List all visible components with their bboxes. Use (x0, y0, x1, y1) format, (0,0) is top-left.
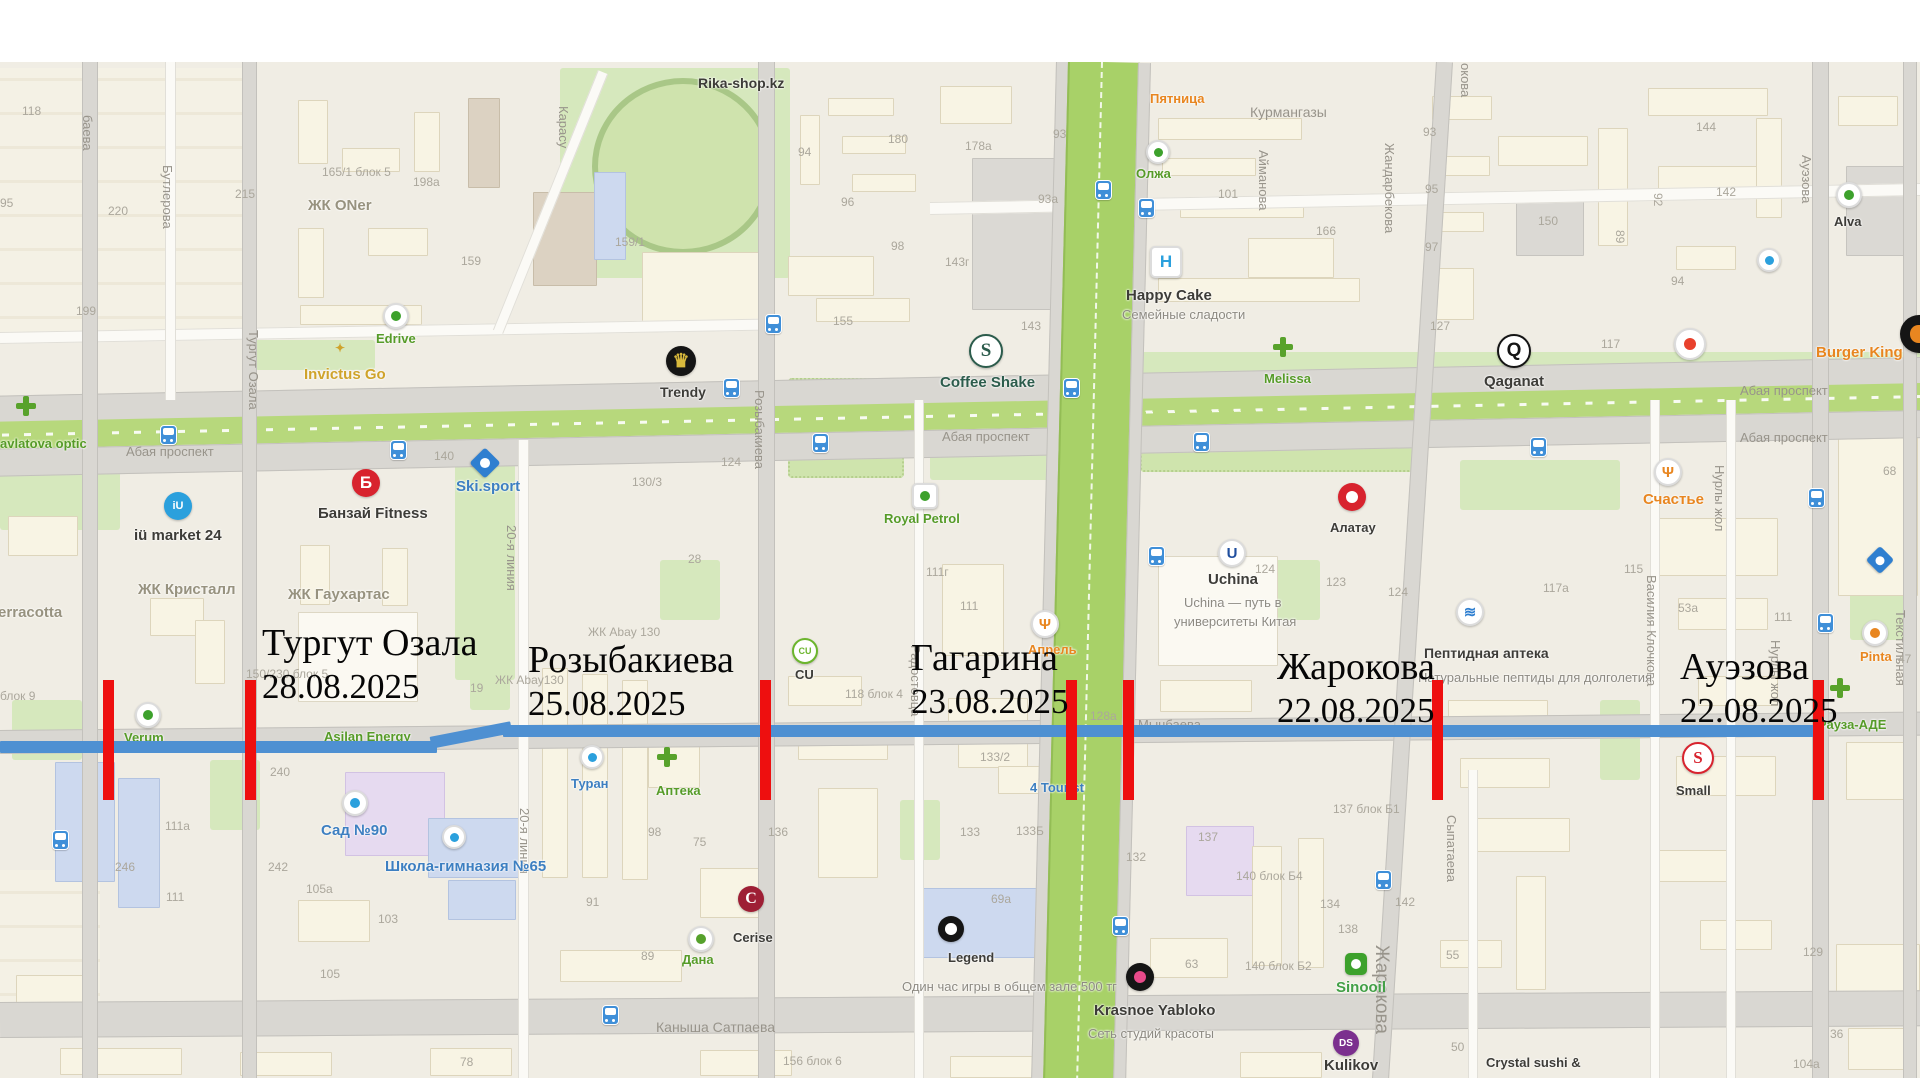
street-label: окова (1458, 63, 1473, 97)
place-label: Туран (571, 776, 609, 791)
house-number: 28 (688, 552, 701, 566)
checkpoint-date-label: 28.08.2025 (262, 667, 420, 707)
house-number: 246 (115, 860, 135, 874)
street-label: Абая проспект (1740, 383, 1828, 398)
house-number: 143 (1021, 319, 1041, 333)
olzha-cart-icon-dot (1154, 148, 1163, 157)
place-label: Sinooil (1336, 979, 1386, 996)
house-number: 215 (235, 187, 255, 201)
building (448, 880, 516, 920)
street-label: 20-я линия (504, 525, 519, 591)
house-number: 198а (413, 175, 440, 189)
house-number: 50 (1451, 1040, 1464, 1054)
building (468, 98, 500, 188)
house-number: 111 (1774, 610, 1792, 624)
place-label: Пятница (1150, 91, 1205, 106)
survey-marker-bar (103, 680, 114, 800)
sinooil-icon-dot (1351, 959, 1361, 969)
building (1470, 818, 1570, 852)
place-label: Krasnoe Yabloko (1094, 1002, 1215, 1019)
checkpoint-street-label: Жарокова (1277, 645, 1435, 689)
tekstilnaya-road (1903, 62, 1917, 1078)
uchina-icon[interactable]: U (1218, 539, 1246, 567)
pinta-icon-dot (1870, 628, 1880, 638)
checkpoint-date-label: 25.08.2025 (528, 684, 686, 724)
house-number: 220 (108, 204, 128, 218)
kulikov-icon[interactable]: DS (1333, 1030, 1359, 1056)
bus-stop-icon[interactable] (160, 425, 177, 445)
building (828, 98, 894, 116)
sypataeva-road (1468, 770, 1478, 1078)
house-number: 103 (378, 912, 398, 926)
house-number: 242 (268, 860, 288, 874)
building (918, 888, 1038, 958)
dana-cart-icon[interactable] (688, 926, 714, 952)
building (1162, 158, 1256, 176)
place-label: Счастье (1643, 491, 1704, 508)
satpaeva-road (0, 990, 1920, 1038)
top-white-margin (0, 0, 1920, 62)
house-number: 138 (1338, 922, 1358, 936)
house-number: 150 (1538, 214, 1558, 228)
house-number: 128а (1090, 709, 1117, 723)
house-number: 133Б (1016, 824, 1044, 838)
place-label: Олжа (1136, 166, 1171, 181)
house-number: 136 (768, 825, 788, 839)
building (1846, 166, 1906, 256)
house-number: 94 (1671, 274, 1684, 288)
krasnoe-yabloko-icon[interactable] (1126, 963, 1154, 991)
bus-stop-icon[interactable] (765, 314, 782, 334)
pharmacy-plus-icon[interactable] (14, 394, 38, 418)
bus-stop-icon[interactable] (723, 378, 740, 398)
bus-stop-icon[interactable] (1148, 546, 1165, 566)
hotel-icon[interactable]: H (1150, 246, 1182, 278)
coffee-shake-icon[interactable]: S (969, 334, 1003, 368)
trendy-crown-icon[interactable]: ♛ (666, 346, 696, 376)
pinta-icon[interactable] (1862, 620, 1888, 646)
checkpoint-date-label: 23.08.2025 (911, 682, 1069, 722)
place-label: Qaganat (1484, 373, 1544, 390)
house-number: 156 блок 6 (783, 1054, 842, 1068)
turgut-ozala-road (242, 62, 257, 1078)
rozybakieva-road (758, 62, 775, 1078)
survey-marker-bar (1123, 680, 1134, 800)
water-drop-icon[interactable] (1757, 248, 1781, 272)
building (1838, 96, 1898, 126)
house-number: 240 (270, 765, 290, 779)
house-number: 142 (1716, 185, 1736, 199)
survey-marker-bar (760, 680, 771, 800)
building (414, 112, 440, 172)
kindergarten-icon-dot (350, 798, 360, 808)
royal-petrol-icon-dot (920, 491, 930, 501)
route-line (503, 725, 1818, 737)
place-label: Один час игры в общем зале 500 тг (902, 979, 1117, 994)
kindergarten-icon[interactable] (342, 790, 368, 816)
building (788, 256, 874, 296)
house-number: 123 (1326, 575, 1346, 589)
nurly-zhol-road (1726, 400, 1736, 1078)
checkpoint-date-label: 22.08.2025 (1680, 691, 1838, 731)
house-number: 180 (888, 132, 908, 146)
house-number: 144 (1696, 120, 1716, 134)
place-label: Rika-shop.kz (698, 75, 784, 91)
house-number: 129 (1803, 945, 1823, 959)
small-market-icon[interactable]: S (1682, 742, 1714, 774)
bus-stop-icon[interactable] (1112, 916, 1129, 936)
bus-stop-icon[interactable] (1817, 613, 1834, 633)
building (1676, 246, 1736, 270)
verum-icon[interactable] (135, 702, 161, 728)
street-label: Курмангазы (1250, 104, 1327, 120)
place-label: Small (1676, 783, 1711, 798)
house-number: 118 блок 4 (845, 687, 903, 701)
line-20-road (518, 440, 529, 1078)
house-number: 97 (1425, 240, 1438, 254)
bus-stop-icon[interactable] (1095, 180, 1112, 200)
building (940, 86, 1012, 124)
house-number: 117 (1601, 337, 1620, 351)
house-number: 111 (960, 599, 978, 613)
house-number: 104а (1793, 1057, 1820, 1071)
house-number: 53а (1678, 601, 1698, 615)
place-label: Kulikov (1324, 1057, 1378, 1074)
photo-studio-icon[interactable] (1674, 328, 1706, 360)
building (816, 298, 910, 322)
checkpoint-date-label: 22.08.2025 (1277, 691, 1435, 731)
place-label: Cerise (733, 930, 773, 945)
street-label: Абая проспект (942, 429, 1030, 444)
route-line (0, 741, 437, 753)
place-label: CU (795, 667, 814, 682)
house-number: 89 (641, 949, 654, 963)
house-number: 124 (1388, 585, 1408, 599)
building (972, 158, 1056, 310)
house-number: 199 (76, 304, 96, 318)
house-number: 69а (991, 892, 1011, 906)
house-number: 68 (1883, 464, 1896, 478)
house-number: 101 (1218, 187, 1238, 201)
checkpoint-street-label: Ауэзова (1680, 645, 1809, 689)
place-label: Terracotta (0, 604, 62, 621)
street-label: Каныша Сатпаева (656, 1019, 775, 1035)
house-number: 117а (1543, 581, 1569, 595)
bus-stop-icon[interactable] (1375, 870, 1392, 890)
alatau-icon-dot (1346, 491, 1359, 504)
street-label: Айманова (1256, 150, 1271, 211)
water-drop-icon-dot (1765, 256, 1774, 265)
house-number: 105 (320, 967, 340, 981)
sinooil-icon[interactable] (1345, 953, 1367, 975)
place-label: ЖК Гаухартас (288, 586, 390, 603)
bus-stop-icon[interactable] (602, 1005, 619, 1025)
survey-marker-bar (245, 680, 256, 800)
building (195, 620, 225, 684)
building (118, 778, 160, 908)
edrive-icon[interactable] (383, 303, 409, 329)
house-number: 133 (960, 825, 980, 839)
house-number: 118 (22, 104, 41, 118)
house-number: ЖК Abay 130 (588, 625, 660, 639)
bus-stop-icon[interactable] (390, 440, 407, 460)
house-number: 75 (693, 835, 706, 849)
building (1516, 876, 1546, 990)
olzha-cart-icon[interactable] (1146, 140, 1170, 164)
building (1652, 850, 1734, 882)
house-number: 178а (965, 139, 992, 153)
place-label: Pinta (1860, 649, 1892, 664)
place-label: Burger King (1816, 344, 1903, 361)
apteka-plus-icon[interactable] (655, 745, 679, 769)
building (818, 788, 878, 878)
house-number: 140 блок Б2 (1245, 959, 1312, 973)
place-label: Edrive (376, 331, 416, 346)
house-number: 92 (1651, 193, 1665, 206)
street-label: Абая проспект (126, 444, 214, 459)
turan-icon[interactable] (580, 745, 604, 769)
legend-club-icon-dot (945, 923, 957, 935)
royal-petrol-icon[interactable] (912, 483, 938, 509)
house-number: 163 (472, 62, 492, 64)
cu-store-icon[interactable]: CU (792, 638, 818, 664)
street-label: Розыбакиева (752, 390, 767, 469)
tea-shop-icon-dot (1910, 325, 1920, 342)
building (1756, 118, 1782, 218)
turan-icon-dot (588, 753, 597, 762)
house-number: 111а (165, 819, 190, 833)
alva-leaf-icon[interactable] (1836, 182, 1862, 208)
house-number: 111 (166, 890, 184, 904)
school-bulb-icon-dot (450, 833, 459, 842)
house-number: 95 (1425, 182, 1438, 196)
building (298, 228, 324, 298)
house-number: 19 (470, 681, 483, 695)
photo-studio-icon-dot (1684, 338, 1697, 351)
baeva-road (82, 62, 98, 1078)
house-number: 132 (1126, 850, 1146, 864)
place-label: Сад №90 (321, 822, 387, 839)
house-number: 137 блок Б1 (1333, 802, 1400, 816)
house-number: 166 (1316, 224, 1336, 238)
peptide-pharmacy-icon[interactable]: ≋ (1456, 598, 1484, 626)
map-canvas[interactable]: баеваБутлероваТургут ОзалаКарасу20-я лин… (0, 62, 1920, 1078)
house-number: 93 (1423, 125, 1436, 139)
street-label: Нурлы жол (1712, 465, 1727, 531)
place-label: Школа-гимназия №65 (385, 858, 546, 875)
house-number: 78 (460, 1055, 473, 1069)
green-area (660, 560, 720, 620)
building (1848, 1028, 1910, 1070)
place-label: Uchina (1208, 571, 1258, 588)
house-number: 47 (1898, 652, 1911, 666)
alatau-icon[interactable] (1338, 483, 1366, 511)
ski-sport-icon-dot (478, 456, 492, 470)
school-bulb-icon[interactable] (442, 825, 466, 849)
aprel-fork-icon[interactable]: Ψ (1031, 610, 1059, 638)
house-number: 159 (461, 254, 481, 268)
house-number: 140 (434, 449, 454, 463)
house-number: 159/1 (615, 235, 645, 249)
building (1248, 238, 1334, 278)
street-label: Жандарбекова (1382, 143, 1397, 233)
house-number: 94 (798, 145, 811, 159)
street-label: Тургут Озала (246, 330, 261, 410)
service-diamond-icon-dot (1874, 554, 1887, 567)
street-label: Текстильная (1893, 610, 1908, 686)
house-number: 155 (833, 314, 853, 328)
qaganat-icon[interactable]: Q (1497, 334, 1531, 368)
building (1648, 88, 1768, 116)
house-number: 96 (841, 195, 854, 209)
bus-stop-icon[interactable] (1063, 378, 1080, 398)
bus-stop-icon[interactable] (1530, 437, 1547, 457)
house-number: блок 9 (0, 689, 35, 703)
checkpoint-street-label: Гагарина (911, 636, 1058, 680)
building (1598, 128, 1628, 246)
place-label: Coffee Shake (940, 374, 1035, 391)
building (700, 1050, 792, 1076)
house-number: 105а (306, 882, 333, 896)
house-number: 63 (1185, 957, 1198, 971)
house-number: 98 (648, 825, 661, 839)
place-label: Invictus Go (304, 366, 386, 383)
bus-stop-icon[interactable] (52, 830, 69, 850)
place-label: Пептидная аптека (1424, 645, 1549, 661)
place-label: Ski.sport (456, 478, 520, 495)
house-number: 98 (891, 239, 904, 253)
street-label: Сыпатаева (1444, 815, 1459, 882)
house-number: 137 (1198, 830, 1218, 844)
place-label: Семейные сладости (1122, 307, 1245, 322)
place-label: ЖК ONer (308, 197, 372, 214)
house-number: 91 (586, 895, 599, 909)
verum-icon-dot (143, 710, 153, 720)
place-label: Crystal sushi & (1486, 1055, 1581, 1070)
building (1700, 920, 1772, 950)
butlerova-road (165, 62, 176, 400)
house-number: 55 (1446, 948, 1459, 962)
building (60, 1048, 182, 1075)
house-number: 95 (0, 196, 13, 210)
house-number: 89 (1613, 230, 1627, 243)
bus-stop-icon[interactable] (812, 433, 829, 453)
legend-club-icon[interactable] (938, 916, 964, 942)
street-label: Бутлерова (160, 165, 175, 229)
house-number: 165/1 блок 5 (322, 165, 391, 179)
edrive-icon-dot (391, 311, 401, 321)
house-number: 115 (1624, 562, 1643, 576)
street-label: Абая проспект (1740, 430, 1828, 445)
auezova-road (1812, 62, 1829, 1078)
green-area (1460, 460, 1620, 510)
bus-stop-icon[interactable] (1138, 198, 1155, 218)
place-label: Банзай Fitness (318, 505, 428, 522)
iu-market-icon[interactable]: iU (164, 492, 192, 520)
street-label: баева (80, 115, 95, 151)
green-area (1600, 700, 1640, 780)
invictus-sparkle-icon[interactable]: ✦ (330, 338, 350, 358)
schastye-fork-icon[interactable]: Ψ (1654, 458, 1682, 486)
place-label: Uchina — путь в (1184, 595, 1281, 610)
building (298, 100, 328, 164)
place-label: Royal Petrol (884, 511, 960, 526)
bus-stop-icon[interactable] (1808, 488, 1825, 508)
building (368, 228, 428, 256)
place-label: Дана (682, 952, 714, 967)
place-label: Alva (1834, 214, 1861, 229)
street-label: Карасу (556, 106, 571, 148)
place-label: iü market 24 (134, 527, 222, 544)
place-label: Legend (948, 950, 994, 965)
house-number: 134 (1320, 897, 1340, 911)
krasnoe-yabloko-icon-dot (1134, 971, 1147, 984)
house-number: 111г (926, 565, 949, 579)
house-number: 36 (1830, 1027, 1843, 1041)
building (1160, 680, 1252, 712)
building (560, 950, 682, 982)
building (298, 900, 370, 942)
place-label: ЖК Кристалл (138, 581, 236, 598)
melissa-plus-icon[interactable] (1271, 335, 1295, 359)
house-number: 140 блок Б4 (1236, 869, 1303, 883)
place-label: avlatova optic (0, 436, 87, 451)
street-label: Ауэзова (1799, 155, 1814, 203)
place-label: Натуральные пептиды для долголетия (1418, 670, 1652, 685)
building (1158, 118, 1302, 140)
building (1252, 846, 1282, 966)
house-number: 127 (1430, 319, 1450, 333)
building (1498, 136, 1588, 166)
building (1240, 1052, 1322, 1078)
bus-stop-icon[interactable] (1193, 432, 1210, 452)
checkpoint-street-label: Розыбакиева (528, 638, 734, 682)
place-label: Алатау (1330, 520, 1376, 535)
house-number: 142 (1395, 895, 1415, 909)
house-number: 124 (721, 455, 741, 469)
house-number: 143г (945, 255, 969, 269)
screenshot-root: баеваБутлероваТургут ОзалаКарасу20-я лин… (0, 0, 1920, 1078)
building (1186, 826, 1254, 896)
house-number: 93 (1053, 127, 1066, 141)
alva-leaf-icon-dot (1844, 190, 1854, 200)
place-label: Happy Cake (1126, 287, 1212, 304)
place-label: Trendy (660, 384, 706, 400)
building (8, 516, 78, 556)
house-number: 133/2 (980, 750, 1010, 764)
cerise-icon[interactable]: C (738, 886, 764, 912)
building (852, 174, 916, 192)
dana-cart-icon-dot (696, 934, 706, 944)
house-number: 130/3 (632, 475, 662, 489)
place-label: университеты Китая (1174, 614, 1296, 629)
checkpoint-street-label: Тургут Озала (262, 621, 478, 665)
house-number: 93а (1038, 192, 1058, 206)
place-label: Melissa (1264, 371, 1311, 386)
place-label: Аптека (656, 783, 701, 798)
place-label: Сеть студий красоты (1088, 1026, 1214, 1041)
banzai-fitness-icon[interactable]: Б (352, 469, 380, 497)
